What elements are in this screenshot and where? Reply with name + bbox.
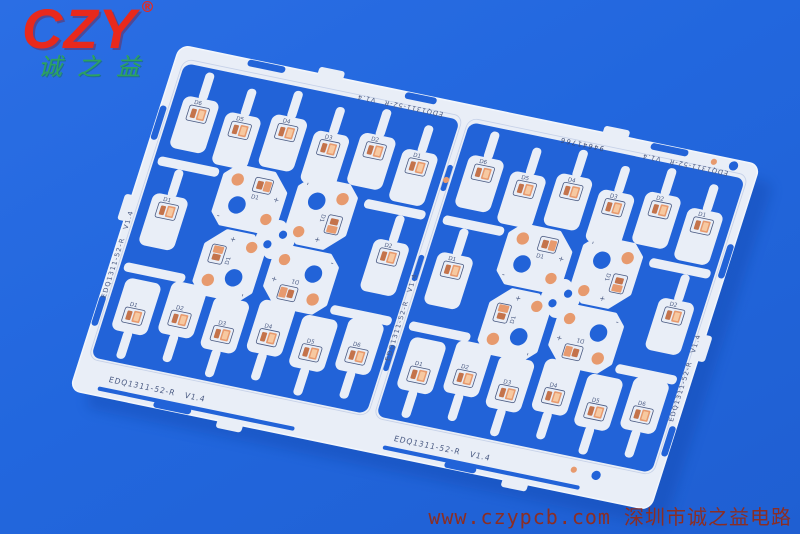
brand-logo-subtext: 诚之益 <box>38 55 155 80</box>
brand-logo: CZY® 诚之益 <box>22 0 155 80</box>
website-watermark: www.czypcb.com 深圳市诚之益电路 <box>428 501 792 530</box>
brand-logo-text: CZY <box>22 0 137 60</box>
registered-trademark-icon: ® <box>140 0 155 16</box>
pcb-panel: D6D5D4D3D2D1D1D2D1D2D3D4D5D6D1+-D1+-D1+-… <box>61 37 769 519</box>
